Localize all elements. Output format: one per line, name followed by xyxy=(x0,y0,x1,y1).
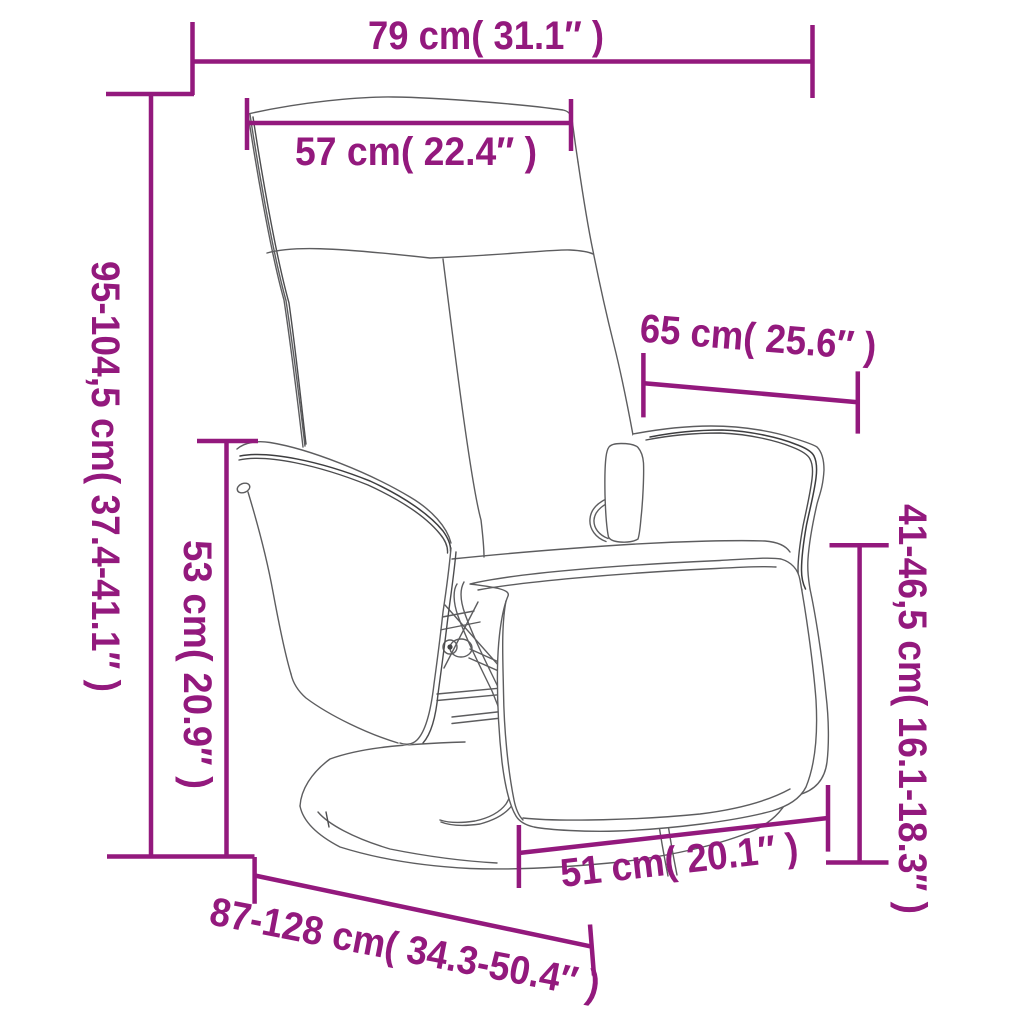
svg-text:53 cm( 20.9″ ): 53 cm( 20.9″ ) xyxy=(175,540,219,789)
svg-text:57 cm( 22.4″ ): 57 cm( 22.4″ ) xyxy=(295,130,537,174)
svg-text:41-46,5 cm( 16.1-18.3″ ): 41-46,5 cm( 16.1-18.3″ ) xyxy=(890,504,934,914)
svg-text:95-104,5 cm( 37.4-41.1″ ): 95-104,5 cm( 37.4-41.1″ ) xyxy=(83,261,127,692)
svg-text:79 cm( 31.1″ ): 79 cm( 31.1″ ) xyxy=(368,14,604,58)
